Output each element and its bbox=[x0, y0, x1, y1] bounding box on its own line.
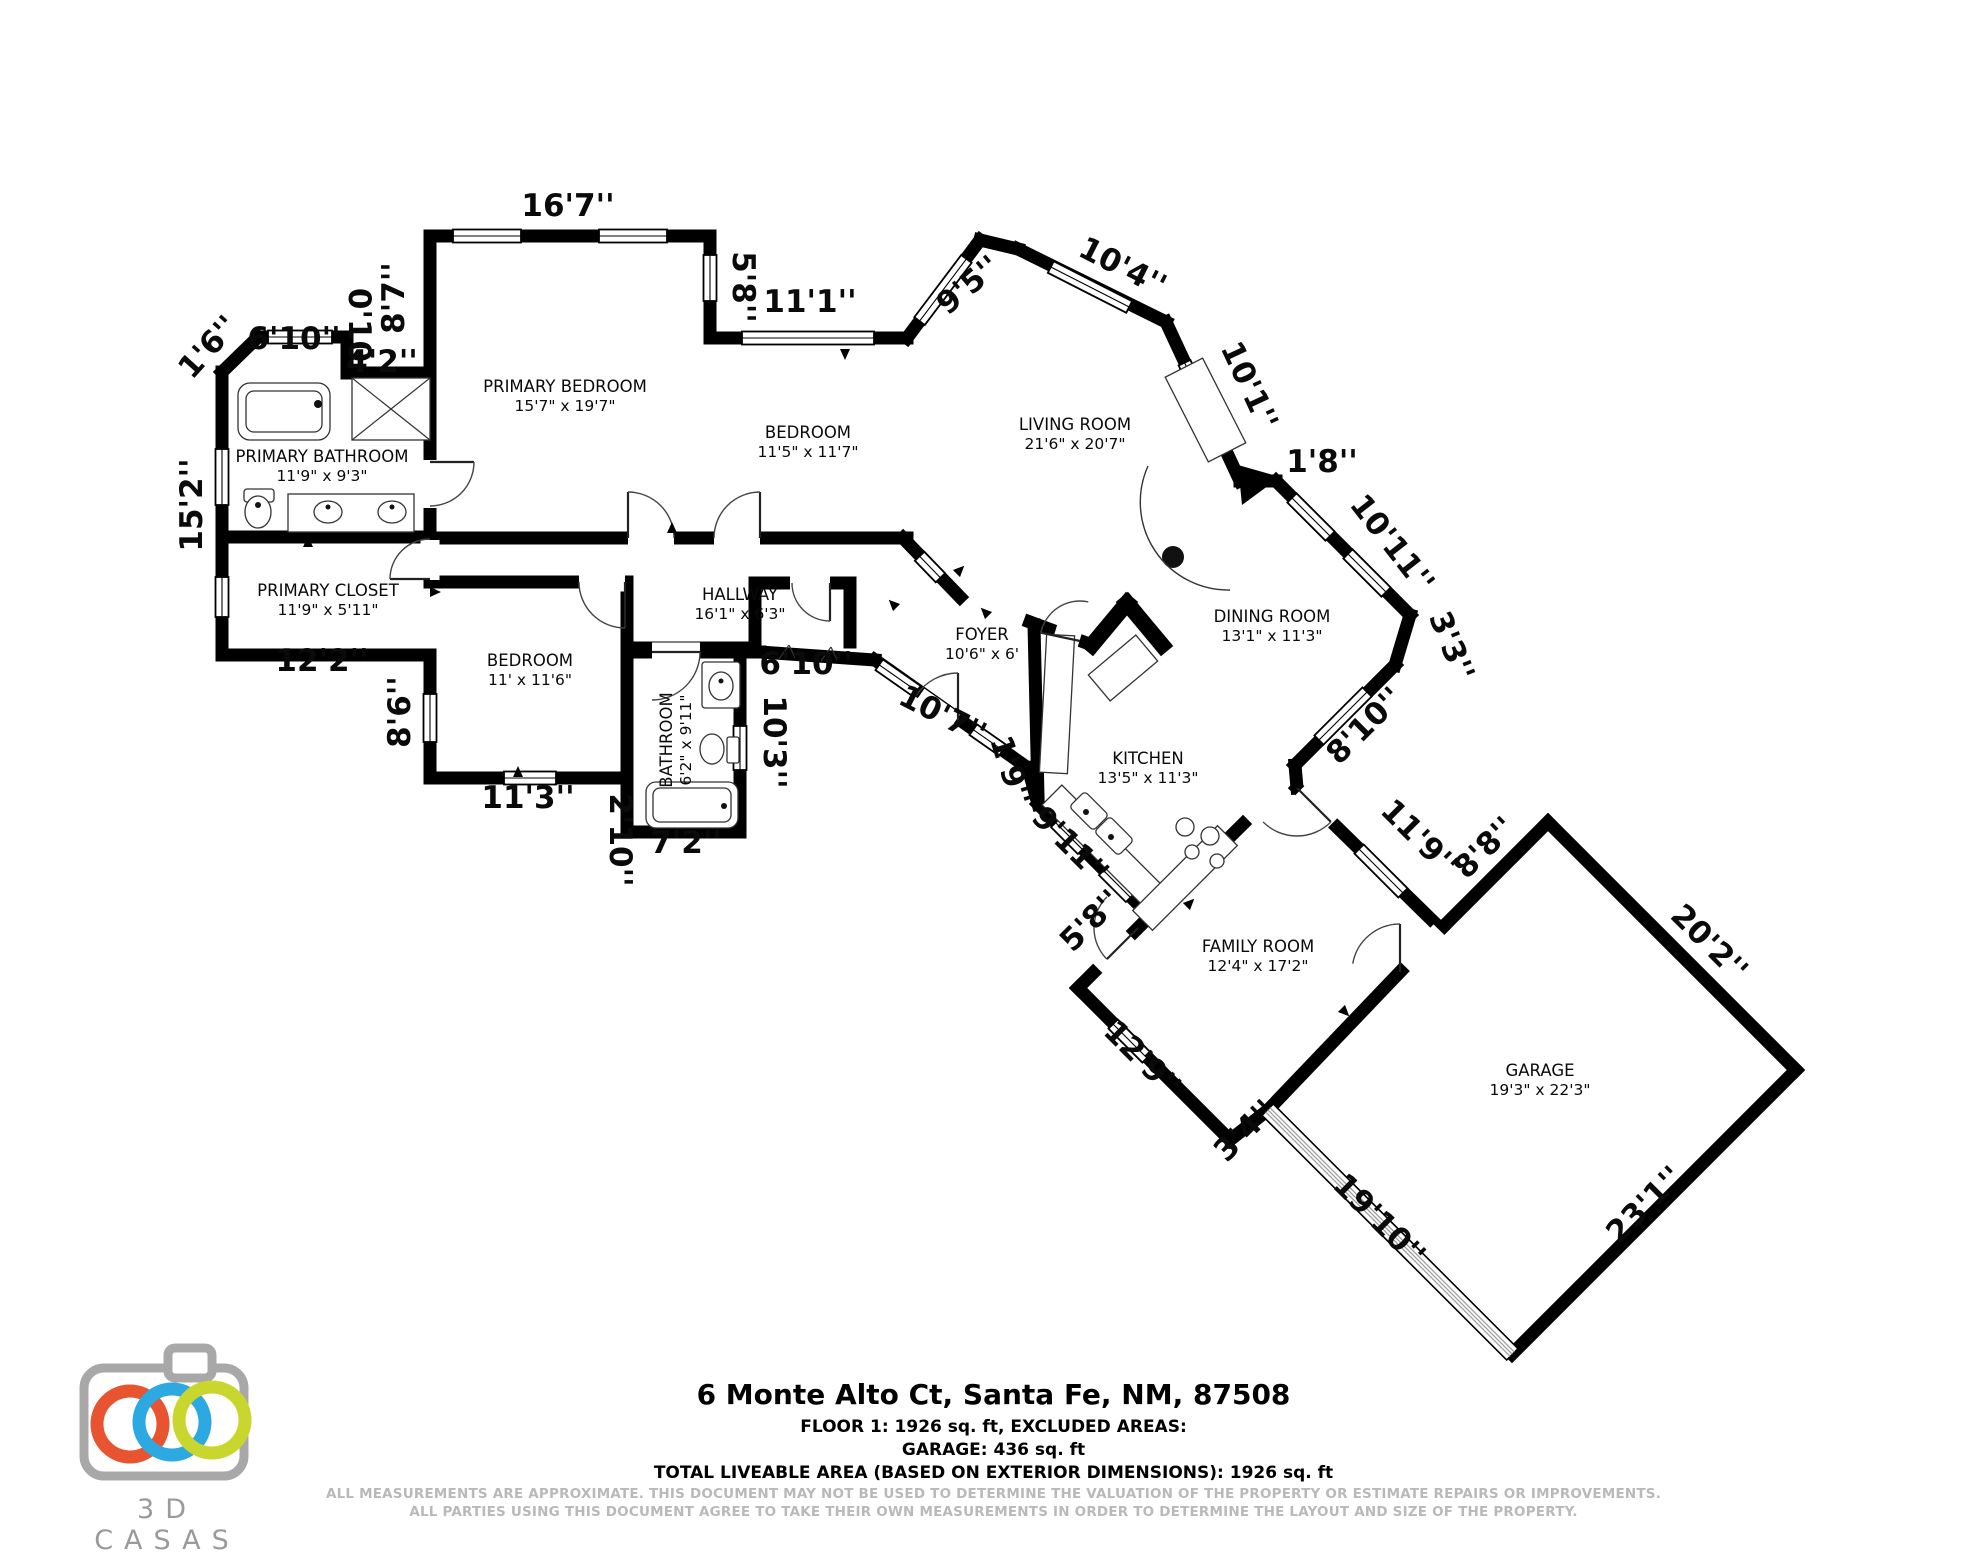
fixture-basin bbox=[314, 501, 342, 523]
wall bbox=[1034, 625, 1038, 796]
fixture-basin bbox=[709, 672, 733, 700]
fixture-dot bbox=[719, 679, 724, 684]
fixture bbox=[1039, 634, 1074, 773]
garage-area-line: GARAGE: 436 sq. ft bbox=[0, 1440, 1987, 1460]
dimension-label: 12'2'' bbox=[275, 643, 368, 679]
room-dims: 15'7" x 19'7" bbox=[515, 397, 616, 415]
room-label: LIVING ROOM bbox=[1019, 415, 1131, 434]
room-label: BATHROOM bbox=[657, 692, 676, 788]
wall bbox=[1092, 603, 1127, 645]
dimension-label: 2'10'' bbox=[602, 793, 638, 886]
dimension-label: 15'2'' bbox=[174, 458, 210, 551]
door-gap bbox=[421, 540, 440, 580]
floorplan-canvas: PRIMARY BEDROOM15'7" x 19'7"BEDROOM11'5"… bbox=[0, 0, 1987, 1536]
fixture-basin bbox=[378, 501, 406, 523]
fixture-dot bbox=[390, 505, 395, 510]
stove-burner bbox=[1210, 854, 1224, 868]
dimension-label: 6'10'' bbox=[247, 321, 340, 357]
door-gap bbox=[1399, 924, 1447, 973]
dimension-label: 23'1'' bbox=[1599, 1159, 1690, 1250]
room-dims: 12'4" x 17'2" bbox=[1208, 957, 1309, 975]
floor-area-line: FLOOR 1: 1926 sq. ft, EXCLUDED AREAS: bbox=[0, 1417, 1987, 1437]
room-label: BEDROOM bbox=[765, 423, 851, 442]
fixture-dot bbox=[326, 505, 331, 510]
door-gap bbox=[790, 574, 830, 593]
disclaimer-line-2: ALL PARTIES USING THIS DOCUMENT AGREE TO… bbox=[0, 1504, 1987, 1520]
room-dims: 19'3" x 22'3" bbox=[1490, 1081, 1591, 1099]
property-address: 6 Monte Alto Ct, Santa Fe, NM, 87508 bbox=[0, 1378, 1987, 1411]
dimension-label: 1'9'' bbox=[982, 731, 1038, 810]
room-label: BEDROOM bbox=[487, 651, 573, 670]
dimension-label: 6'10'' bbox=[759, 646, 852, 682]
dimension-label: 7'2'' bbox=[650, 825, 722, 861]
room-label: KITCHEN bbox=[1112, 749, 1184, 768]
fixture-dot bbox=[1083, 809, 1089, 815]
room-label: PRIMARY BEDROOM bbox=[483, 377, 647, 396]
stove-burner bbox=[1176, 818, 1194, 836]
dimension-label: 10'3'' bbox=[756, 695, 792, 788]
dimension-label: 8'6'' bbox=[382, 676, 418, 748]
dimension-label: 5'8'' bbox=[725, 251, 761, 323]
room-dims: 11'9" x 9'3" bbox=[276, 467, 367, 485]
room-dims: 16'1" x 6'3" bbox=[694, 605, 785, 623]
fixture bbox=[246, 391, 322, 432]
wall bbox=[1395, 615, 1410, 665]
camera-flash bbox=[168, 1348, 212, 1378]
dimension-label: 19'10'' bbox=[1326, 1167, 1433, 1274]
dimension-label: 10'7'' bbox=[893, 678, 992, 752]
wall-arrow bbox=[667, 522, 677, 533]
room-dims: 21'6" x 20'7" bbox=[1025, 435, 1126, 453]
wall-arrow bbox=[885, 596, 900, 611]
dimension-label: 1'6'' bbox=[171, 309, 246, 386]
fixture-dot bbox=[721, 803, 727, 809]
stove-burner bbox=[1201, 827, 1219, 845]
dimension-label: 11'1'' bbox=[763, 284, 856, 320]
fixture-dot bbox=[1162, 546, 1184, 568]
room-label: DINING ROOM bbox=[1214, 607, 1331, 626]
room-dims: 13'1" x 11'3" bbox=[1222, 627, 1323, 645]
disclaimer-line-1: ALL MEASUREMENTS ARE APPROXIMATE. THIS D… bbox=[0, 1486, 1987, 1502]
hearth-arc bbox=[1140, 466, 1230, 590]
dimension-label: 16'7'' bbox=[521, 188, 614, 224]
dimension-label: 4'2'' bbox=[346, 344, 418, 380]
door-gap bbox=[421, 460, 440, 508]
dimension-label: 3'3'' bbox=[1421, 606, 1481, 686]
fixture-dot bbox=[314, 400, 322, 408]
window-midline bbox=[1292, 498, 1330, 536]
window-midline bbox=[1359, 849, 1403, 893]
dimension-label: 8'8'' bbox=[1447, 810, 1523, 886]
room-label: FAMILY ROOM bbox=[1202, 937, 1314, 956]
room-dims: 10'6" x 6' bbox=[945, 645, 1019, 663]
room-dims: 11' x 11'6" bbox=[488, 671, 572, 689]
fixture bbox=[727, 737, 739, 763]
room-label: HALLWAY bbox=[702, 585, 779, 604]
fixture-dot bbox=[255, 502, 261, 508]
room-label: FOYER bbox=[955, 625, 1009, 644]
fixture-dot bbox=[1108, 834, 1114, 840]
room-dims: 6'2" x 9'11" bbox=[677, 694, 695, 785]
room-label: PRIMARY BATHROOM bbox=[235, 447, 408, 466]
footer: 6 Monte Alto Ct, Santa Fe, NM, 87508 FLO… bbox=[0, 1378, 1987, 1522]
wall-arrow bbox=[953, 562, 968, 577]
dimension-label: 12'9'' bbox=[1096, 1013, 1187, 1104]
room-dims: 11'5" x 11'7" bbox=[758, 443, 859, 461]
dimension-label: 1'8'' bbox=[1286, 444, 1358, 480]
fixture bbox=[653, 788, 731, 822]
dimension-label: 8'7'' bbox=[376, 262, 412, 334]
door-gap bbox=[714, 529, 760, 548]
room-label: PRIMARY CLOSET bbox=[257, 581, 400, 600]
door-gap bbox=[628, 529, 674, 548]
door-swing-arc bbox=[1353, 924, 1400, 964]
dimension-label: 10'11'' bbox=[1342, 488, 1441, 601]
wall-arrow bbox=[840, 349, 850, 360]
wall-arrow bbox=[977, 604, 992, 619]
wall bbox=[1548, 822, 1796, 1070]
fixture-basin bbox=[245, 496, 271, 528]
window-midline bbox=[1348, 554, 1386, 592]
room-dims: 11'9" x 5'11" bbox=[278, 601, 379, 619]
total-area-line: TOTAL LIVEABLE AREA (BASED ON EXTERIOR D… bbox=[0, 1463, 1987, 1483]
dimension-label: 11'3'' bbox=[481, 780, 574, 816]
room-dims: 13'5" x 11'3" bbox=[1098, 769, 1199, 787]
stove-burner bbox=[1185, 845, 1199, 859]
door-gap bbox=[579, 573, 625, 592]
fixture-basin bbox=[700, 734, 724, 764]
room-label: GARAGE bbox=[1505, 1061, 1574, 1080]
